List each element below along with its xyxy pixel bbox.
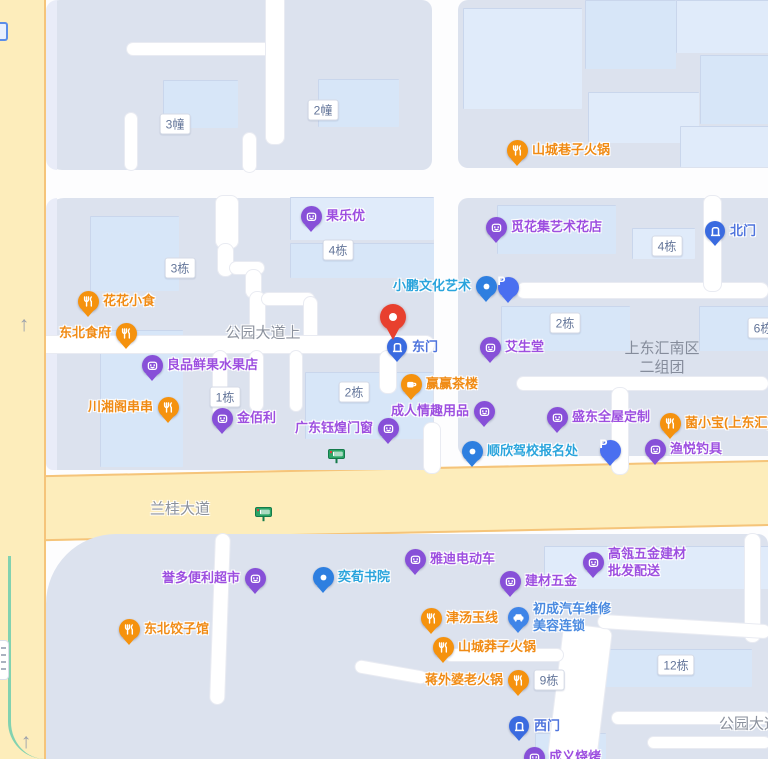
road [125,113,137,170]
road [216,196,238,248]
poi-label[interactable]: 东门 [412,338,438,355]
road-direction-arrow-icon: ↑ [19,313,30,337]
bus-stop-1-icon[interactable] [328,449,346,469]
building-label: 2幢 [308,100,339,121]
fork-knife-icon [82,295,95,308]
bag-icon [249,572,262,585]
yixun-academy-pin[interactable] [313,567,334,588]
bag-icon [146,359,159,372]
guoleyou-pin[interactable] [301,206,322,227]
road-direction-arrow-icon: ↑ [21,730,32,754]
shancheng-mangzi-hotpot-pin[interactable] [433,637,454,658]
yuyue-fishing-gear-pin[interactable] [645,439,666,460]
poi-label[interactable]: 花花小食 [103,292,155,309]
p-letter-icon: P [502,281,515,294]
cycleway-line [8,556,45,759]
chengyi-bbq-pin[interactable] [524,747,545,759]
building-label: 2栋 [339,382,370,403]
yingying-teahouse-pin[interactable] [401,374,422,395]
dot-icon [466,445,479,458]
building-label: 1栋 [210,387,241,408]
parking-south-pin[interactable]: P [600,440,621,461]
bus-stop-2-icon[interactable] [255,507,273,527]
bag-icon [649,443,662,456]
fork-knife-icon [512,674,525,687]
west-gate-pin[interactable] [509,716,529,736]
poi-label[interactable]: 艾生堂 [505,338,544,355]
east-gate-pin[interactable] [387,337,407,357]
door-icon [709,225,722,238]
junxiaobao-shangdonghui-pin[interactable] [660,413,681,434]
building-label: 12栋 [657,655,694,676]
bag-icon [409,553,422,566]
poi-label[interactable]: 果乐优 [326,207,365,224]
selected-location-pin-glyph[interactable] [380,304,406,330]
road [517,377,768,390]
dot-icon [317,571,330,584]
yadi-ebike-pin[interactable] [405,549,426,570]
road-name-label: 公园大道上 [225,322,300,343]
road-langui-avenue [0,460,768,543]
building-label: 4栋 [323,240,354,261]
chucheng-auto-repair-pin[interactable] [508,607,529,628]
jiangwaipo-hotpot-pin[interactable] [508,670,529,691]
poi-label[interactable]: 成人情趣用品 [391,402,469,419]
building [463,8,582,109]
road-name-label: 兰桂大道 [150,498,210,519]
dongbei-shifu-pin[interactable] [116,323,137,344]
poi-label[interactable]: 金佰利 [237,409,276,426]
bag-icon [484,341,497,354]
p-letter-icon: P [604,444,617,457]
building-label: 3栋 [165,258,196,279]
building [676,0,768,53]
poi-label[interactable]: 菌小宝(上东汇) [685,414,768,431]
building-label: 6栋 [748,318,768,339]
poi-label[interactable]: 西门 [534,717,560,734]
huahua-snack-pin[interactable] [78,291,99,312]
road [517,283,768,298]
fork-knife-icon [123,623,136,636]
poi-label[interactable]: 山城莽子火锅 [458,638,536,655]
road-edge-strip [46,198,57,470]
shunxin-driving-school-pin[interactable] [462,441,483,462]
door-icon [391,341,404,354]
liangpin-fresh-fruit-pin[interactable] [142,355,163,376]
jintang-yuxian-pin[interactable] [421,608,442,629]
poi-label[interactable]: 奕荀书院 [338,568,390,585]
poi-label[interactable]: 北门 [730,222,756,239]
poi-label[interactable]: 渔悦钓具 [670,440,722,457]
bag-icon [528,751,541,759]
transit-badge-clipped [0,22,8,41]
poi-label[interactable]: 成义烧烤 [549,748,601,759]
fork-knife-icon [162,401,175,414]
jiancai-wujin-pin[interactable] [500,571,521,592]
chuanxiangge-chuanchuan-pin[interactable] [158,397,179,418]
mihuaji-art-flower-shop-pin[interactable] [486,217,507,238]
area-name-label: 上东汇南区二组团 [624,339,699,377]
adult-products-shop-pin[interactable] [474,401,495,422]
building-label: 4栋 [652,236,683,257]
aishengtang-pin[interactable] [480,337,501,358]
parking-north-pin[interactable]: P [498,277,519,298]
road-name-label: 公园大道 [719,713,768,734]
fork-knife-icon [425,612,438,625]
bag-icon [478,405,491,418]
map-canvas[interactable]: 山城巷子火锅果乐优觅花集艺术花店北门花花小食东北食府小鹏文化艺术P东门艾生堂良品… [0,0,768,759]
shengdong-whole-house-custom-pin[interactable] [547,407,568,428]
poi-label[interactable]: 雅迪电动车 [430,550,495,567]
fork-knife-icon [437,641,450,654]
jinbaili-pin[interactable] [212,408,233,429]
bag-icon [551,411,564,424]
door-icon [513,720,526,733]
road-shield-clipped [0,640,9,680]
coffee-icon [405,378,418,391]
car-icon [512,611,525,624]
fork-knife-icon [664,417,677,430]
road [424,423,440,473]
poi-label[interactable]: 蒋外婆老火锅 [425,671,503,688]
building-label: 2栋 [550,313,581,334]
poi-label[interactable]: 川湘阁串串 [88,398,153,415]
poi-label[interactable]: 东北食府 [59,324,111,341]
building [90,216,179,291]
bag-icon [382,422,395,435]
bag-icon [305,210,318,223]
building [585,0,676,69]
poi-label[interactable]: 誉多便利超市 [162,569,240,586]
poi-label[interactable]: 盛东全屋定制 [572,408,650,425]
road [127,43,272,55]
poi-label[interactable]: 高瓴五金建材批发配送 [608,545,686,579]
poi-label[interactable]: 良品鲜果水果店 [167,356,258,373]
building [680,126,768,167]
poi-label[interactable]: 建材五金 [525,572,577,589]
fork-knife-icon [511,144,524,157]
gaoling-hardware-wholesale-pin[interactable] [583,552,604,573]
guangdong-yuhuang-doors-pin[interactable] [378,418,399,439]
poi-label[interactable]: 赢赢茶楼 [426,375,478,392]
poi-label[interactable]: 觅花集艺术花店 [511,218,602,235]
building [290,243,434,278]
poi-label[interactable]: 津汤玉线 [446,609,498,626]
bag-icon [587,556,600,569]
bag-icon [490,221,503,234]
poi-label[interactable]: 小鹏文化艺术 [393,277,471,294]
road [266,0,284,144]
road [243,133,256,172]
building-label: 3幢 [160,114,191,135]
road [290,351,302,411]
poi-label[interactable]: 顺欣驾校报名处 [487,442,578,459]
poi-label[interactable]: 初成汽车维修美容连锁 [533,600,611,634]
poi-label[interactable]: 东北饺子馆 [144,620,209,637]
building [700,55,768,124]
poi-label[interactable]: 山城巷子火锅 [532,141,610,158]
north-gate-pin[interactable] [705,221,725,241]
dongbei-dumpling-house-pin[interactable] [119,619,140,640]
yuduo-convenience-store-pin[interactable] [245,568,266,589]
road-edge-strip [46,0,57,170]
fork-knife-icon [120,327,133,340]
bag-icon [504,575,517,588]
bag-icon [216,412,229,425]
poi-label[interactable]: 广东钰煌门窗 [295,419,373,436]
road [648,737,768,748]
building-label: 9栋 [534,670,565,691]
shancheng-xiangzi-hotpot-pin[interactable] [507,140,528,161]
